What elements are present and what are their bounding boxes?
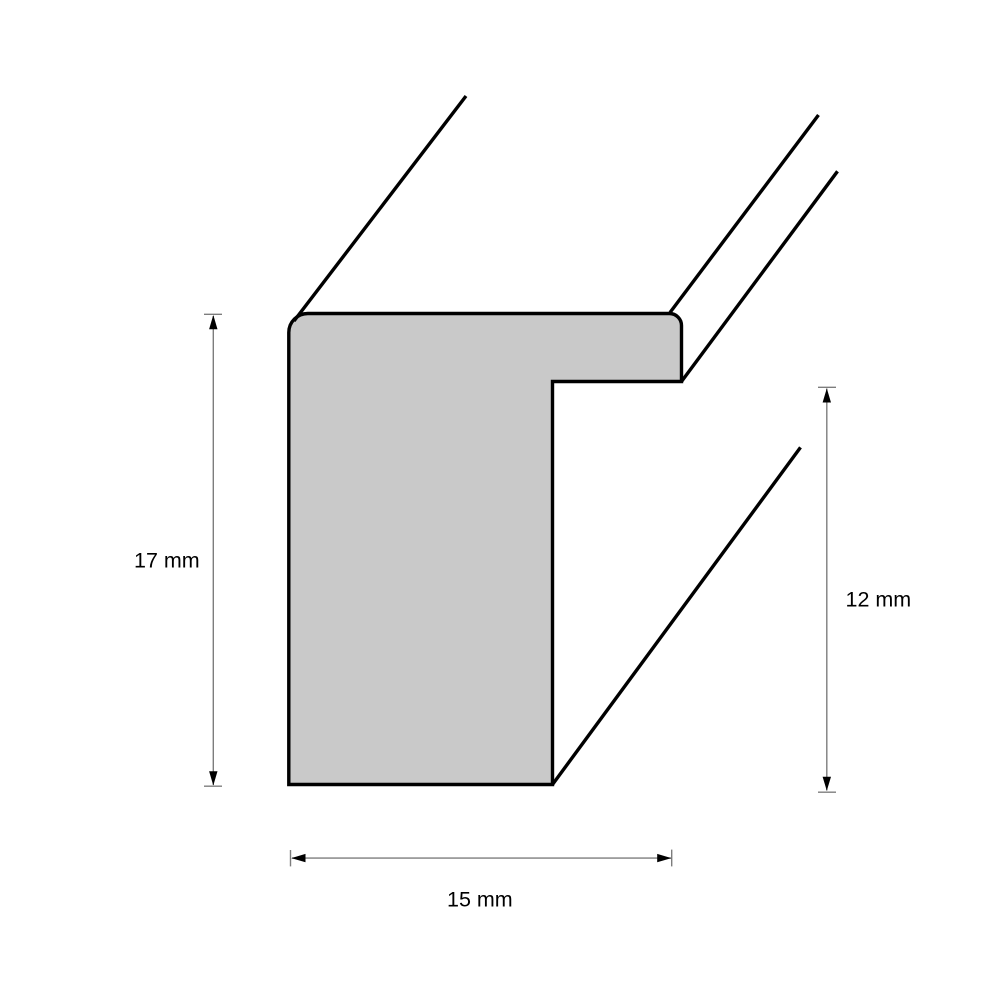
svg-text:17 mm: 17 mm [134,548,200,572]
svg-text:15 mm: 15 mm [447,887,513,911]
svg-text:12 mm: 12 mm [846,588,912,612]
